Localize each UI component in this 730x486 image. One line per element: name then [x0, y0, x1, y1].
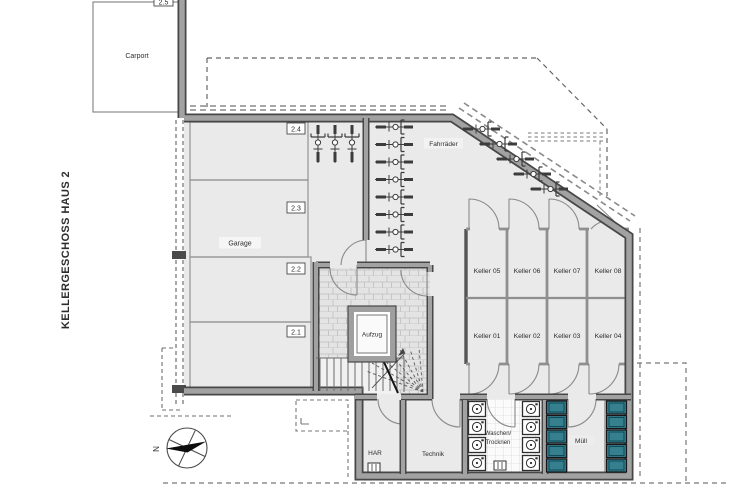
waste-bin-icon	[547, 430, 567, 443]
label-carport: Carport	[125, 53, 148, 60]
label-keller-05: Keller 05	[474, 268, 501, 275]
waste-bin-icon	[547, 459, 567, 472]
floor-drain-icon	[494, 461, 506, 470]
north-needle-icon	[166, 442, 206, 453]
label-stall-2-2: 2.2	[291, 267, 301, 274]
waste-bin-icon	[547, 416, 567, 429]
floor-plan-page: KELLERGESCHOSS HAUS 2 Carport Garage Fah…	[0, 0, 730, 486]
waste-bin-icon	[607, 430, 627, 443]
page-title: KELLERGESCHOSS HAUS 2	[60, 171, 72, 329]
label-keller-02: Keller 02	[514, 333, 541, 340]
label-stall-2-1: 2.1	[291, 330, 301, 337]
label-keller-03: Keller 03	[554, 333, 581, 340]
label-technik: Technik	[422, 451, 445, 458]
label-laundry-1: Waschen/	[485, 431, 512, 437]
label-stall-2-4: 2.4	[291, 127, 301, 134]
waste-bin-icon	[547, 445, 567, 458]
waste-bin-icon	[607, 416, 627, 429]
label-elevator: Aufzug	[362, 332, 383, 339]
label-stall-2-3: 2.3	[291, 206, 301, 213]
waste-bin-icon	[607, 459, 627, 472]
label-laundry-2: Trocknen	[486, 440, 511, 446]
label-north: N	[152, 446, 161, 452]
label-keller-08: Keller 08	[595, 268, 622, 275]
label-waste: Müll	[575, 438, 587, 445]
compass-icon	[166, 428, 207, 468]
label-keller-04: Keller 04	[595, 333, 622, 340]
washing-machine-icon	[523, 420, 540, 435]
waste-bin-icon	[607, 445, 627, 458]
washing-machine-icon	[523, 456, 540, 471]
washing-machine-icon	[469, 456, 486, 471]
label-garage: Garage	[228, 241, 251, 248]
washing-machine-icon	[523, 402, 540, 417]
washing-machine-icon	[469, 402, 486, 417]
label-keller-07: Keller 07	[554, 268, 581, 275]
washing-machine-icon	[523, 438, 540, 453]
floor-plan-drawing: KELLERGESCHOSS HAUS 2 Carport Garage Fah…	[0, 0, 730, 486]
garage-opening-stubs	[172, 251, 186, 393]
label-stall-2-5: 2.5	[159, 0, 169, 7]
waste-bin-icon	[607, 401, 627, 414]
washing-machine-icon	[469, 420, 486, 435]
stair-hall-floor-right	[396, 358, 430, 394]
washing-machine-icon	[469, 438, 486, 453]
label-keller-01: Keller 01	[474, 333, 501, 340]
label-har: HAR	[368, 450, 382, 457]
label-bikes: Fahrräder	[429, 141, 458, 148]
label-keller-06: Keller 06	[514, 268, 541, 275]
floor-drain-icon	[368, 463, 380, 472]
waste-bin-icon	[547, 401, 567, 414]
